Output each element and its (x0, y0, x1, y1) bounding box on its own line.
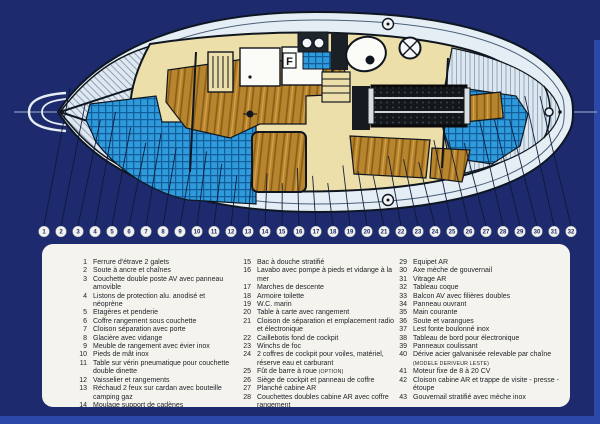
engine-grate (372, 86, 466, 126)
chart-table-dot (248, 75, 251, 78)
legend-item-number: 41 (392, 368, 407, 376)
legend-item-number: 18 (236, 293, 251, 301)
marker-number: 14 (262, 230, 269, 236)
legend-item-number: 16 (236, 267, 251, 284)
legend-item: 22 Caillebotis fond de cockpit (236, 335, 396, 343)
legend-item-number: 20 (236, 309, 251, 317)
legend-item-number: 1 (72, 259, 87, 267)
legend-item: 24 2 coffres de cockpit pour voiles, mat… (236, 351, 396, 368)
legend-item-text: 2 coffres de cockpit pour voiles, matéri… (257, 351, 396, 368)
legend-item-number: 30 (392, 267, 407, 275)
legend-item: 43 Gouvernail stratifié avec mèche inox (392, 394, 564, 402)
legend-item-text: Soute et varangues (413, 318, 564, 326)
legend-item-text: Gouvernail stratifié avec mèche inox (413, 394, 564, 402)
legend-item: 39 Panneaux coulissant (392, 343, 564, 351)
legend-item: 4 Listons de protection alu. anodisé et … (72, 293, 230, 310)
legend-item-note: (OPTION) (317, 369, 344, 375)
legend-item-number: 40 (392, 351, 407, 368)
legend-item-number: 21 (236, 318, 251, 335)
legend-item-text: Axe mèche de gouvernail (413, 267, 564, 275)
marker-number: 24 (432, 230, 439, 236)
legend-item-number: 11 (72, 360, 87, 377)
legend-item: 7 Cloison séparation avec porte (72, 326, 230, 334)
legend-item-text: Table à carte avec rangement (257, 309, 396, 317)
legend-item-text: Bac à douche stratifié (257, 259, 396, 267)
boat-plan-diagram: F 12345678910111213141516171819202122232… (0, 0, 600, 242)
legend-item-text: Vitrage AR (413, 276, 564, 284)
legend-column-1: 1 Ferrure d'étrave 2 galets 2 Soute à an… (72, 259, 230, 410)
marker-number: 12 (228, 230, 235, 236)
legend-item-text: Armoire toilette (257, 293, 396, 301)
legend-item: 28 Couchettes doubles cabine AR avec cof… (236, 394, 396, 411)
legend-item: 12 Vaisselier et rangements (72, 377, 230, 385)
legend-item-number: 8 (72, 335, 87, 343)
legend-item-text: Cloison cabine AR et trappe de visite - … (413, 377, 564, 394)
marker-number: 11 (211, 230, 218, 236)
legend-item-text: Pieds de mât inox (93, 351, 230, 359)
legend-item-text: Moulage support de cadènes (93, 402, 230, 410)
legend-item-number: 17 (236, 284, 251, 292)
legend-item: 16 Lavabo avec pompe à pieds et vidange … (236, 267, 396, 284)
legend-item-text: Balcon AV avec filières doubles (413, 293, 564, 301)
legend-item-text: Caillebotis fond de cockpit (257, 335, 396, 343)
winch-bottom-dot (387, 199, 390, 202)
legend-item-text: Vaisselier et rangements (93, 377, 230, 385)
legend-item-number: 28 (236, 394, 251, 411)
legend-item-number: 32 (392, 284, 407, 292)
legend-item-text: Soute à ancre et chaînes (93, 267, 230, 275)
legend-item-number: 24 (236, 351, 251, 368)
legend-item-text: W.C. marin (257, 301, 396, 309)
legend-item-text: Equipet AR (413, 259, 564, 267)
chart-table-top (240, 48, 280, 86)
legend-item: 33 Balcon AV avec filières doubles (392, 293, 564, 301)
marker-number: 25 (449, 230, 456, 236)
legend-item-number: 29 (392, 259, 407, 267)
marker-number: 10 (194, 230, 201, 236)
legend-item: 9 Meuble de rangement avec évier inox (72, 343, 230, 351)
sink-basin-left (302, 38, 312, 48)
legend-item-text: Tableau coque (413, 284, 564, 292)
legend-item-text: Fût de barre à roue (OPTION) (257, 368, 396, 376)
legend-item-number: 27 (236, 385, 251, 393)
stove-letter: F (286, 56, 293, 68)
legend-item: 27 Planché cabine AR (236, 385, 396, 393)
marker-number: 31 (551, 230, 558, 236)
rudder-stock (558, 110, 562, 114)
legend-item: 5 Etagères et penderie (72, 309, 230, 317)
legend-item-number: 26 (236, 377, 251, 385)
marker-number: 28 (500, 230, 507, 236)
marker-number: 27 (483, 230, 490, 236)
marker-number: 19 (347, 230, 354, 236)
legend-item-number: 7 (72, 326, 87, 334)
legend-item: 20 Table à carte avec rangement (236, 309, 396, 317)
legend-item-number: 14 (72, 402, 87, 410)
legend-item: 29 Equipet AR (392, 259, 564, 267)
legend-item-number: 19 (236, 301, 251, 309)
legend-item-number: 2 (72, 267, 87, 275)
legend-item-text: Winchs de foc (257, 343, 396, 351)
legend-item-text: Tableau de bord pour électronique (413, 335, 564, 343)
hanging-locker (208, 52, 233, 92)
legend-item-text: Meuble de rangement avec évier inox (93, 343, 230, 351)
legend-item-text: Cloison séparation avec porte (93, 326, 230, 334)
legend-item-text: Dérive acier galvanisée relevable par ch… (413, 351, 564, 368)
legend-item-number: 34 (392, 301, 407, 309)
wc-drain (366, 56, 375, 65)
winch-top-dot (387, 23, 390, 26)
legend-item-number: 4 (72, 293, 87, 310)
legend-item: 30 Axe mèche de gouvernail (392, 267, 564, 275)
legend-item-number: 6 (72, 318, 87, 326)
legend-item-text: Siège de cockpit et panneau de coffre (257, 377, 396, 385)
marker-number: 20 (364, 230, 371, 236)
legend-item-text: Réchaud 2 feux sur cardan avec bouteille… (93, 385, 230, 402)
galley-cushion (303, 52, 331, 69)
legend-item-number: 10 (72, 351, 87, 359)
marker-number: 29 (517, 230, 524, 236)
legend-item: 17 Marches de descente (236, 284, 396, 292)
marker-number: 15 (279, 230, 286, 236)
engine-grate-cap-left (368, 88, 374, 124)
legend-item: 36 Soute et varangues (392, 318, 564, 326)
legend-item: 31 Vitrage AR (392, 276, 564, 284)
legend-item-text: Cloison de séparation et emplacement rad… (257, 318, 396, 335)
legend-item: 26 Siège de cockpit et panneau de coffre (236, 377, 396, 385)
legend-item-text: Marches de descente (257, 284, 396, 292)
legend-item-text: Couchette double poste AV avec panneau a… (93, 276, 230, 293)
legend-item: 14 Moulage support de cadènes (72, 402, 230, 410)
legend-item: 41 Moteur fixe de 8 à 20 CV (392, 368, 564, 376)
legend-item-number: 36 (392, 318, 407, 326)
page-edge-bottom (0, 416, 600, 424)
legend-item: 35 Main courante (392, 309, 564, 317)
legend-item: 8 Glacière avec vidange (72, 335, 230, 343)
legend-item-number: 3 (72, 276, 87, 293)
sink-basin-right (314, 38, 324, 48)
legend-item-text: Moteur fixe de 8 à 20 CV (413, 368, 564, 376)
legend-item: 40 Dérive acier galvanisée relevable par… (392, 351, 564, 368)
legend-item: 19 W.C. marin (236, 301, 396, 309)
legend-item-text: Main courante (413, 309, 564, 317)
legend-item-text: Panneau ouvrant (413, 301, 564, 309)
legend-item: 1 Ferrure d'étrave 2 galets (72, 259, 230, 267)
legend-item-number: 31 (392, 276, 407, 284)
legend-item: 23 Winchs de foc (236, 343, 396, 351)
marker-number: 26 (466, 230, 473, 236)
legend-item: 25 Fût de barre à roue (OPTION) (236, 368, 396, 376)
marker-number: 22 (398, 230, 405, 236)
marker-number: 16 (296, 230, 303, 236)
legend-item-text: Ferrure d'étrave 2 galets (93, 259, 230, 267)
legend-item-number: 9 (72, 343, 87, 351)
marker-number: 18 (330, 230, 337, 236)
legend-item-number: 33 (392, 293, 407, 301)
legend-item: 3 Couchette double poste AV avec panneau… (72, 276, 230, 293)
legend-item: 18 Armoire toilette (236, 293, 396, 301)
legend-item-text: Lavabo avec pompe à pieds et vidange à l… (257, 267, 396, 284)
legend-item-number: 39 (392, 343, 407, 351)
legend-item-text: Couchettes doubles cabine AR avec coffre… (257, 394, 396, 411)
legend-item-text: Lest fonte boulonné inox (413, 326, 564, 334)
marker-row: 1234567891011121314151617181920212223242… (39, 226, 577, 237)
legend-item-number: 35 (392, 309, 407, 317)
legend-item-number: 23 (236, 343, 251, 351)
marker-number: 13 (245, 230, 252, 236)
marker-number: 17 (313, 230, 320, 236)
legend-item: 2 Soute à ancre et chaînes (72, 267, 230, 275)
legend-item-text: Planché cabine AR (257, 385, 396, 393)
marker-number: 32 (568, 230, 575, 236)
legend-item: 13 Réchaud 2 feux sur cardan avec boutei… (72, 385, 230, 402)
legend-column-2: 15 Bac à douche stratifié 16 Lavabo avec… (236, 259, 396, 410)
legend-item: 38 Tableau de bord pour électronique (392, 335, 564, 343)
marker-number: 21 (381, 230, 388, 236)
marker-number: 30 (534, 230, 541, 236)
leader-line (44, 88, 70, 226)
legend-item: 15 Bac à douche stratifié (236, 259, 396, 267)
companionway-dark-band (352, 86, 370, 130)
legend-item: 37 Lest fonte boulonné inox (392, 326, 564, 334)
legend-item: 42 Cloison cabine AR et trappe de visite… (392, 377, 564, 394)
legend-item: 6 Coffre rangement sous couchette (72, 318, 230, 326)
legend-panel: 1 Ferrure d'étrave 2 galets 2 Soute à an… (42, 244, 570, 407)
legend-item-note: (MODELE DERIVEUR LESTE) (413, 361, 489, 367)
marker-number: 23 (415, 230, 422, 236)
legend-item: 11 Table sur vérin pneumatique pour couc… (72, 360, 230, 377)
legend-item-text: Listons de protection alu. anodisé et né… (93, 293, 230, 310)
legend-item-text: Etagères et penderie (93, 309, 230, 317)
engine-grate-cap-right (464, 88, 470, 124)
legend-item-text: Panneaux coulissant (413, 343, 564, 351)
legend-item-text: Coffre rangement sous couchette (93, 318, 230, 326)
legend-item-number: 22 (236, 335, 251, 343)
legend-item: 34 Panneau ouvrant (392, 301, 564, 309)
legend-item-number: 38 (392, 335, 407, 343)
legend-item-number: 25 (236, 368, 251, 376)
rudder-axis (545, 108, 553, 116)
legend-item-number: 37 (392, 326, 407, 334)
legend-item-number: 13 (72, 385, 87, 402)
legend-item: 10 Pieds de mât inox (72, 351, 230, 359)
cockpit-floor-wood (350, 136, 430, 178)
legend-item-number: 43 (392, 394, 407, 402)
legend-item: 21 Cloison de séparation et emplacement … (236, 318, 396, 335)
companionway-steps (322, 72, 350, 102)
legend-item-number: 5 (72, 309, 87, 317)
legend-item-number: 42 (392, 377, 407, 394)
legend-column-3: 29 Equipet AR 30 Axe mèche de gouvernail… (392, 259, 564, 402)
legend-item-number: 15 (236, 259, 251, 267)
legend-item-text: Glacière avec vidange (93, 335, 230, 343)
legend-item-text: Table sur vérin pneumatique pour couchet… (93, 360, 230, 377)
legend-item-number: 12 (72, 377, 87, 385)
legend-item: 32 Tableau coque (392, 284, 564, 292)
